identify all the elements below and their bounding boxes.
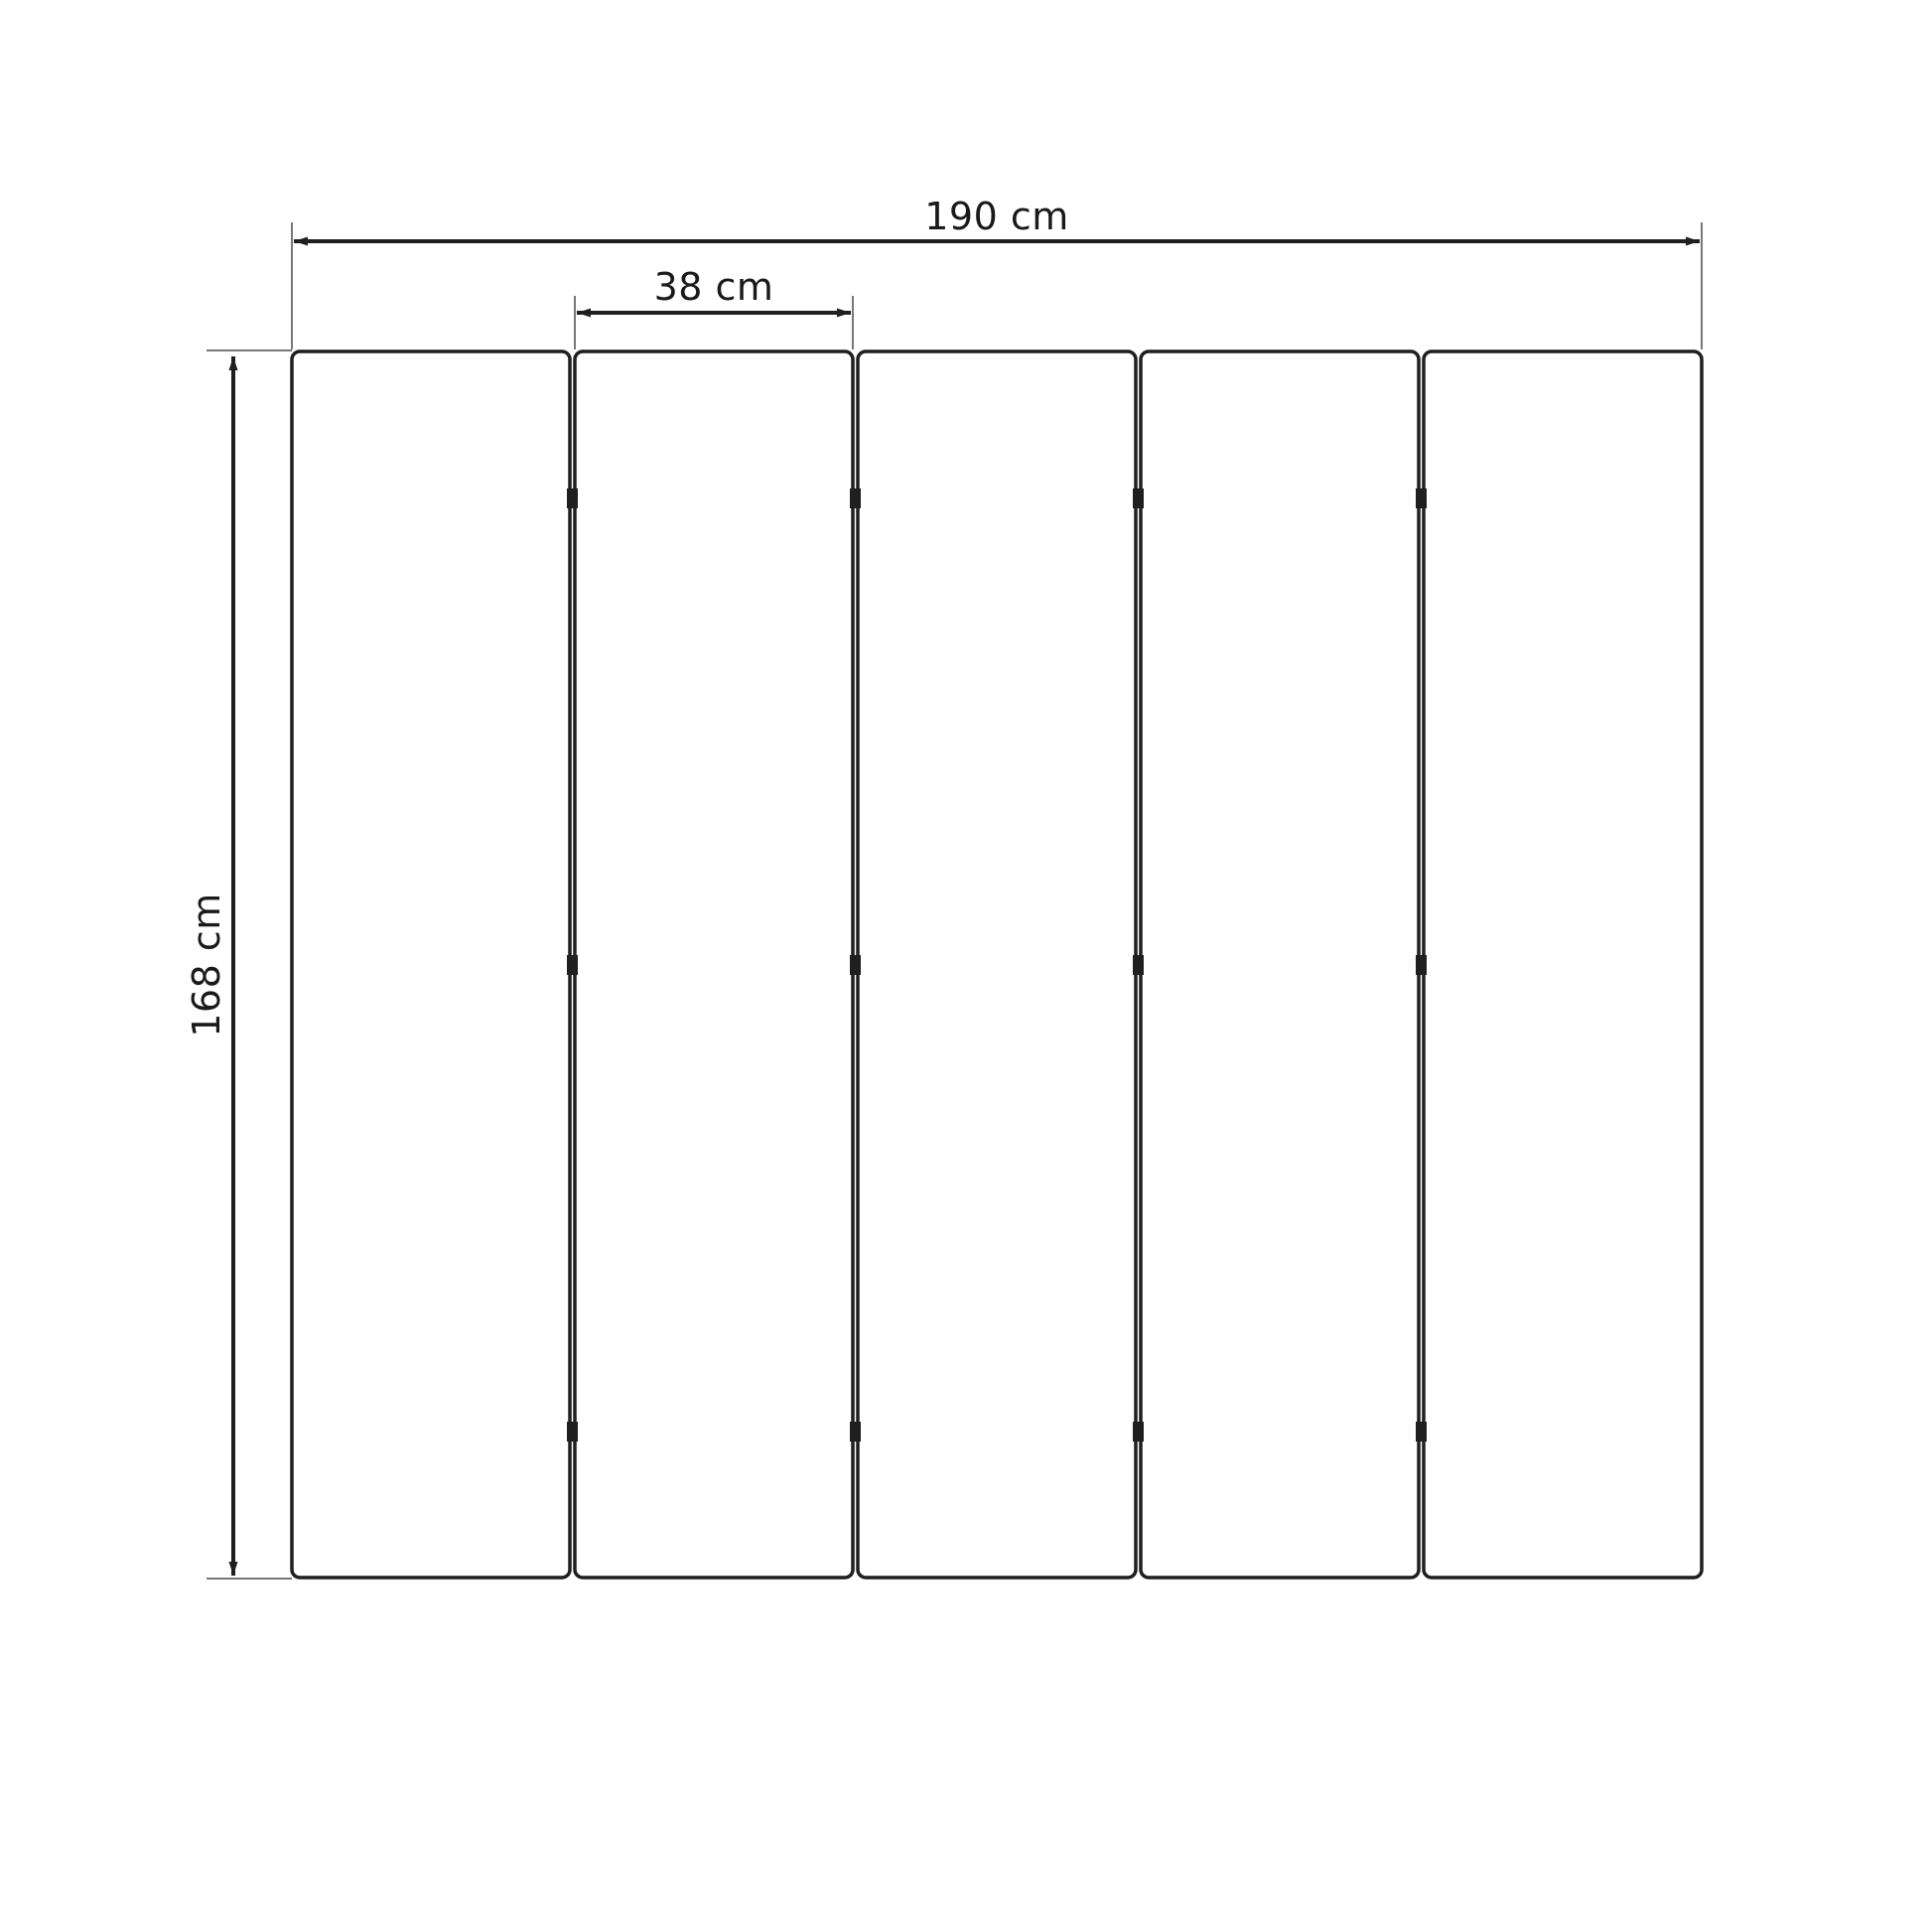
hinge-mark <box>1133 488 1144 508</box>
dimension-label-total-width: 190 cm <box>924 195 1069 238</box>
hinge-mark <box>1416 1422 1427 1442</box>
dimension-label-height: 168 cm <box>185 893 228 1037</box>
hinge-mark <box>567 1422 578 1442</box>
hinge-mark <box>567 955 578 975</box>
screen-panel-1 <box>292 351 570 1578</box>
technical-drawing-canvas: 190 cm 38 cm 168 cm <box>0 0 1932 1932</box>
hinge-mark <box>1133 955 1144 975</box>
hinge-mark <box>1416 955 1427 975</box>
hinge-mark <box>567 488 578 508</box>
screen-panel-5 <box>1424 351 1702 1578</box>
screen-panel-4 <box>1141 351 1419 1578</box>
screen-panel-3 <box>858 351 1136 1578</box>
folding-screen-dimension-drawing: 190 cm 38 cm 168 cm <box>0 0 1932 1932</box>
hinge-mark <box>850 488 861 508</box>
panel-group <box>292 351 1702 1578</box>
screen-panel-2 <box>575 351 853 1578</box>
hinge-mark <box>1416 488 1427 508</box>
hinge-mark <box>850 1422 861 1442</box>
hinge-mark <box>850 955 861 975</box>
dimension-label-panel-width: 38 cm <box>654 265 774 309</box>
hinge-mark <box>1133 1422 1144 1442</box>
